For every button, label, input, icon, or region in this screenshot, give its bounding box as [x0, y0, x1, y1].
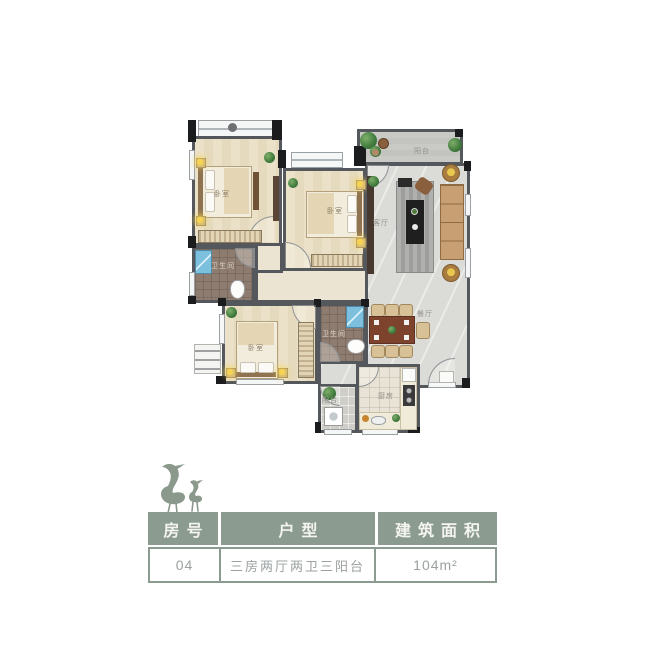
table-data-row: 04 三房两厅两卫三阳台 104m²: [148, 547, 497, 583]
room-label-balcony: 阳台: [322, 395, 338, 405]
window: [465, 194, 471, 216]
place-setting: [374, 335, 379, 340]
plant: [392, 414, 400, 422]
col-header-room-number: 房号: [148, 512, 218, 545]
window: [189, 150, 195, 180]
room-label-bedroom: 卧室: [327, 206, 343, 216]
column: [188, 236, 196, 248]
window: [236, 379, 284, 385]
headboard: [357, 191, 362, 236]
lamp-glow: [227, 369, 233, 375]
coffee-table: [406, 200, 424, 244]
column: [278, 150, 286, 168]
plant: [226, 307, 237, 318]
plant: [448, 138, 462, 152]
ceiling-fan-icon: [228, 123, 237, 132]
lamp-glow: [357, 239, 363, 245]
column: [354, 146, 366, 166]
wardrobe: [198, 230, 262, 243]
room-label-bedroom: 卧室: [248, 343, 264, 353]
col-header-layout-type: 户型: [221, 512, 375, 545]
side-table: [442, 164, 460, 182]
dining-chair: [385, 345, 399, 358]
room-label-bathroom: 卫生间: [211, 261, 235, 271]
dining-chair: [371, 345, 385, 358]
column: [455, 129, 463, 137]
window: [324, 429, 352, 435]
pillow: [258, 362, 274, 373]
plant: [368, 176, 379, 187]
lamp-glow: [197, 159, 203, 165]
dishware: [412, 224, 418, 230]
pillow: [205, 170, 215, 190]
pillow: [240, 362, 256, 373]
patio-table: [378, 138, 389, 149]
door-mat: [439, 371, 454, 383]
table-plant: [411, 208, 418, 215]
sink: [371, 416, 386, 425]
dining-chair: [416, 322, 430, 339]
bed-bench: [253, 172, 259, 210]
toilet: [230, 280, 245, 299]
table-plant: [388, 326, 396, 334]
column: [188, 120, 196, 132]
stove: [403, 385, 415, 406]
lamp-glow: [197, 217, 203, 223]
room-label-living: 客厅: [373, 218, 389, 228]
plant: [288, 178, 298, 188]
column: [216, 376, 226, 384]
shower: [195, 250, 212, 274]
place-setting: [404, 335, 409, 340]
corridor-stub: [255, 243, 283, 273]
patio-chair: [372, 149, 379, 156]
fridge: [402, 368, 416, 382]
room-label-bathroom: 卫生间: [322, 329, 346, 339]
place-setting: [404, 320, 409, 325]
ac-platform: [194, 344, 221, 374]
blanket: [238, 323, 274, 345]
bedroom-middle-window: [291, 152, 343, 168]
plant: [264, 152, 275, 163]
column: [188, 296, 196, 304]
wardrobe: [298, 322, 314, 378]
side-table: [442, 264, 460, 282]
room-label-balcony: 阳台: [414, 146, 430, 156]
window: [189, 272, 195, 296]
room-label-kitchen: 厨房: [378, 391, 394, 401]
room-label-bedroom: 卧室: [214, 189, 230, 199]
floor-plan: 卧室 卧室 客厅 阳台 卫生间 卧室 卫生间 餐厅 阳台 厨房: [178, 116, 484, 458]
window: [465, 248, 471, 278]
sofa: [440, 184, 464, 260]
room-label-dining: 餐厅: [417, 309, 433, 319]
table-header-row: 房号 户型 建筑面积: [148, 512, 497, 545]
column: [315, 422, 321, 433]
toilet: [347, 339, 365, 354]
tv-cabinet: [273, 176, 279, 221]
tv-console: [398, 178, 412, 187]
column: [218, 298, 226, 306]
col-header-building-area: 建筑面积: [378, 512, 497, 545]
pillow: [347, 215, 357, 233]
layout-type-value: 三房两厅两卫三阳台: [219, 549, 376, 581]
place-setting: [374, 320, 379, 325]
column: [464, 161, 471, 171]
lamp-glow: [357, 181, 363, 187]
shower: [346, 306, 364, 328]
headboard: [198, 166, 203, 216]
column: [272, 120, 282, 140]
herons-icon: [150, 458, 212, 514]
washing-machine: [324, 407, 343, 426]
room-number-value: 04: [150, 549, 219, 581]
window: [219, 314, 225, 344]
pillow: [347, 195, 357, 213]
building-area-value: 104m²: [376, 549, 495, 581]
dining-chair: [399, 345, 413, 358]
corridor: [255, 268, 368, 303]
info-table: 房号 户型 建筑面积 04 三房两厅两卫三阳台 104m²: [148, 512, 497, 583]
fruit-bowl: [362, 415, 369, 422]
lamp-glow: [279, 369, 285, 375]
wardrobe: [311, 254, 363, 267]
column: [462, 378, 470, 388]
